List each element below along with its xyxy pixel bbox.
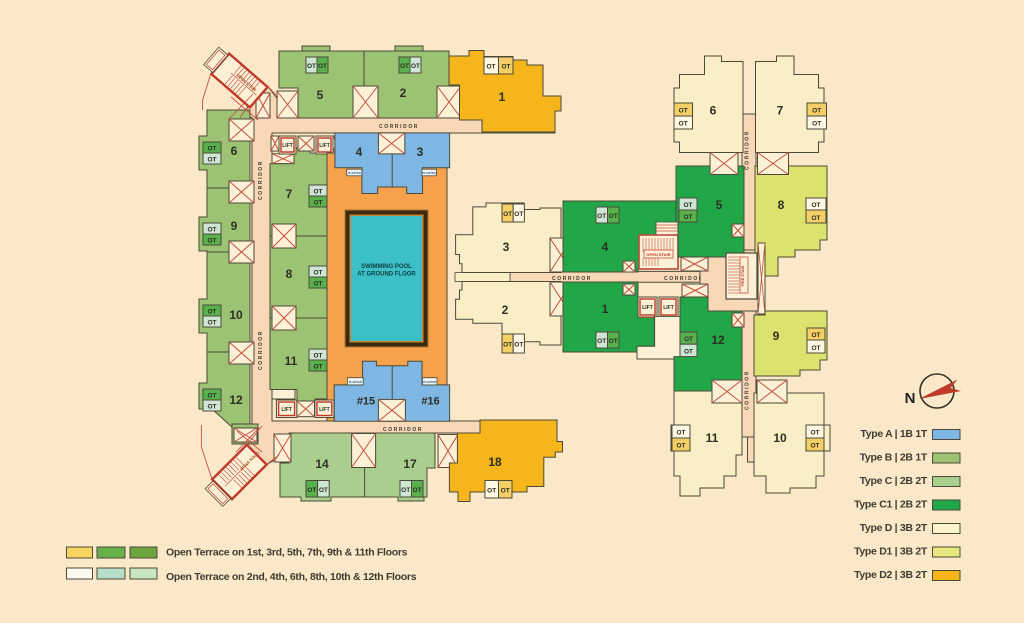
svg-text:OT: OT — [207, 320, 216, 327]
svg-text:Type D2 | 3B 2T: Type D2 | 3B 2T — [854, 569, 928, 581]
svg-text:#15: #15 — [357, 396, 375, 408]
svg-text:OT: OT — [503, 342, 512, 349]
svg-text:OT: OT — [679, 108, 688, 115]
svg-text:OT: OT — [811, 202, 820, 209]
svg-text:1: 1 — [602, 302, 609, 316]
svg-text:3: 3 — [503, 240, 510, 254]
svg-text:CORRIDOR: CORRIDOR — [383, 427, 423, 433]
svg-text:OT: OT — [207, 238, 216, 245]
svg-text:OT: OT — [514, 342, 523, 349]
svg-text:OT: OT — [679, 121, 688, 128]
svg-text:OT: OT — [207, 227, 216, 234]
svg-text:9: 9 — [773, 329, 780, 343]
svg-text:8: 8 — [778, 198, 785, 212]
svg-text:OT: OT — [487, 488, 496, 495]
svg-text:OT: OT — [810, 443, 819, 450]
svg-text:12: 12 — [229, 393, 243, 407]
svg-text:OT: OT — [307, 63, 316, 70]
svg-text:18: 18 — [488, 455, 502, 469]
svg-text:OT: OT — [307, 487, 316, 494]
svg-text:OT: OT — [313, 270, 322, 277]
svg-text:OT: OT — [319, 487, 328, 494]
svg-text:OT: OT — [503, 211, 512, 218]
svg-text:CORRIDOR: CORRIDOR — [745, 370, 751, 410]
svg-text:5: 5 — [317, 88, 324, 102]
svg-text:OT: OT — [597, 338, 606, 345]
svg-text:OT: OT — [501, 64, 510, 71]
svg-text:OT: OT — [683, 214, 692, 221]
svg-text:OT: OT — [207, 404, 216, 411]
svg-text:CORRIDOR: CORRIDOR — [379, 124, 419, 130]
svg-text:OT: OT — [486, 64, 495, 71]
svg-text:7: 7 — [286, 187, 293, 201]
svg-text:LIFT: LIFT — [663, 305, 674, 311]
svg-text:5: 5 — [716, 198, 723, 212]
svg-text:OT: OT — [400, 63, 409, 70]
svg-text:CORRIDOR: CORRIDOR — [745, 130, 751, 170]
svg-text:OT: OT — [609, 338, 618, 345]
svg-text:OT: OT — [318, 63, 327, 70]
svg-text:CORRIDOR: CORRIDOR — [258, 330, 264, 370]
svg-text:10: 10 — [229, 308, 243, 322]
svg-text:OT: OT — [514, 211, 523, 218]
svg-text:2: 2 — [502, 303, 509, 317]
svg-text:4: 4 — [602, 240, 609, 254]
svg-text:14: 14 — [315, 457, 329, 471]
svg-text:OT: OT — [811, 215, 820, 222]
svg-text:OT: OT — [810, 430, 819, 437]
svg-text:PLANTER: PLANTER — [349, 380, 362, 384]
svg-text:OT: OT — [684, 348, 693, 355]
svg-text:3: 3 — [417, 145, 424, 159]
svg-text:CORRIDOR: CORRIDOR — [664, 276, 704, 282]
svg-text:FIRE STAIR: FIRE STAIR — [741, 265, 745, 286]
svg-text:7: 7 — [777, 104, 784, 118]
svg-text:OT: OT — [501, 488, 510, 495]
svg-text:6: 6 — [231, 144, 238, 158]
svg-text:OT: OT — [676, 430, 685, 437]
svg-text:OT: OT — [207, 157, 216, 164]
svg-text:OT: OT — [207, 309, 216, 316]
svg-text:LIFT: LIFT — [319, 407, 330, 413]
svg-text:OT: OT — [684, 336, 693, 343]
svg-text:OT: OT — [597, 213, 606, 220]
svg-text:2: 2 — [400, 86, 407, 100]
svg-text:OT: OT — [401, 487, 410, 494]
svg-text:OT: OT — [811, 332, 820, 339]
svg-text:AT GROUND FLOOR: AT GROUND FLOOR — [357, 272, 416, 278]
svg-text:OT: OT — [313, 281, 322, 288]
svg-text:OT: OT — [313, 353, 322, 360]
svg-text:4: 4 — [356, 145, 363, 159]
svg-text:SWIMMING POOL: SWIMMING POOL — [361, 264, 412, 270]
svg-text:LIFT: LIFT — [281, 407, 292, 413]
svg-text:10: 10 — [773, 431, 787, 445]
svg-text:#16: #16 — [421, 396, 439, 408]
svg-text:Type D | 3B 2T: Type D | 3B 2T — [860, 522, 928, 534]
svg-text:PLANTER: PLANTER — [423, 380, 436, 384]
svg-text:OT: OT — [812, 108, 821, 115]
svg-text:OT: OT — [413, 487, 422, 494]
svg-text:8: 8 — [286, 267, 293, 281]
svg-text:OT: OT — [313, 200, 322, 207]
svg-text:11: 11 — [706, 431, 719, 445]
svg-text:6: 6 — [710, 104, 717, 118]
svg-text:Type C1 | 2B 2T: Type C1 | 2B 2T — [854, 499, 928, 511]
svg-text:OT: OT — [811, 345, 820, 352]
svg-text:OPEN STAIR: OPEN STAIR — [646, 252, 670, 257]
svg-text:OT: OT — [676, 443, 685, 450]
svg-text:OT: OT — [683, 202, 692, 209]
svg-text:Type A | 1B 1T: Type A | 1B 1T — [860, 428, 927, 440]
svg-text:LIFT: LIFT — [642, 305, 653, 311]
svg-text:9: 9 — [231, 219, 238, 233]
svg-text:12: 12 — [711, 333, 725, 347]
svg-text:Open Terrace on 2nd, 4th, 6th,: Open Terrace on 2nd, 4th, 6th, 8th, 10th… — [166, 571, 417, 583]
svg-text:1: 1 — [499, 90, 506, 104]
svg-text:OT: OT — [313, 364, 322, 371]
svg-text:LIFT: LIFT — [319, 143, 330, 149]
svg-text:17: 17 — [403, 457, 417, 471]
svg-text:OT: OT — [411, 63, 420, 70]
svg-text:OT: OT — [812, 121, 821, 128]
svg-text:OT: OT — [313, 189, 322, 196]
svg-text:Type B | 2B 1T: Type B | 2B 1T — [860, 452, 928, 464]
svg-text:PLANTER: PLANTER — [422, 171, 435, 175]
svg-text:OT: OT — [207, 393, 216, 400]
svg-text:Open Terrace on 1st, 3rd, 5th,: Open Terrace on 1st, 3rd, 5th, 7th, 9th … — [166, 547, 408, 559]
svg-text:OT: OT — [609, 213, 618, 220]
svg-text:LIFT: LIFT — [282, 143, 293, 149]
svg-text:11: 11 — [285, 354, 298, 368]
svg-text:CORRIDOR: CORRIDOR — [258, 160, 264, 200]
svg-text:N: N — [905, 390, 916, 407]
svg-text:Type D1 | 3B 2T: Type D1 | 3B 2T — [854, 546, 928, 558]
svg-text:PLANTER: PLANTER — [348, 171, 361, 175]
svg-text:Type C | 2B 2T: Type C | 2B 2T — [860, 475, 928, 487]
svg-text:OT: OT — [207, 146, 216, 153]
